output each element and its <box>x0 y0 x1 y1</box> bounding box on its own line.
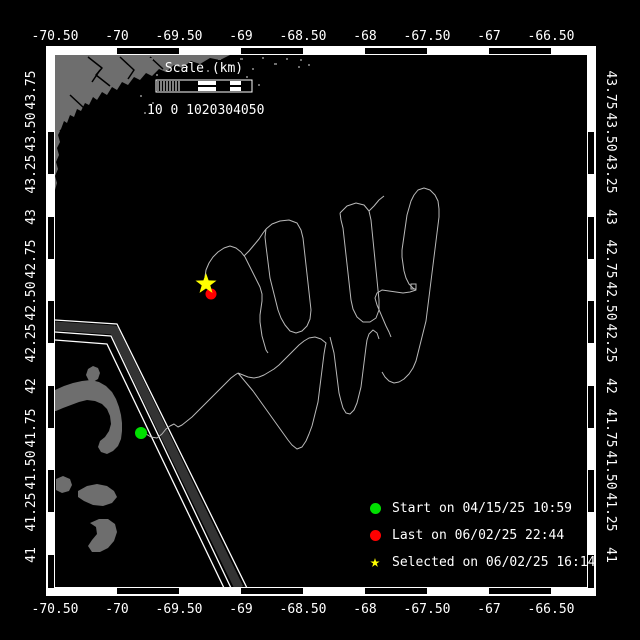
lat-label-right: 42.50 <box>603 281 618 320</box>
land-speckles <box>308 64 310 66</box>
lat-label-right: 43.75 <box>603 70 618 109</box>
frame-tick-segment <box>241 48 303 54</box>
lat-label-left: 42 <box>24 378 39 394</box>
glider-track <box>265 220 311 333</box>
lat-label-right: 41.75 <box>603 408 618 447</box>
position-markers <box>135 273 217 439</box>
lon-label-bottom: -70.50 <box>32 602 79 617</box>
land-speckles <box>286 58 288 60</box>
land-speckles <box>298 66 300 68</box>
land-cape-cod <box>55 380 122 454</box>
glider-track <box>238 337 326 449</box>
land-speckles <box>262 57 264 59</box>
glider-track <box>369 196 384 211</box>
lat-label-right: 42.25 <box>603 323 618 362</box>
lat-label-left: 42.75 <box>24 239 39 278</box>
lat-label-right: 41.50 <box>603 450 618 489</box>
frame-tick-segment <box>588 217 594 259</box>
lon-label-bottom: -67.50 <box>404 602 451 617</box>
frame-tick-segment <box>48 470 54 512</box>
frame-tick-segment <box>117 588 179 594</box>
start-position-marker[interactable] <box>135 427 147 439</box>
frame-tick-segment <box>117 48 179 54</box>
glider-track <box>375 188 439 383</box>
lat-label-left: 43.75 <box>24 70 39 109</box>
land-speckles <box>240 58 243 60</box>
frame-tick-segment <box>48 301 54 343</box>
lon-label-top: -69 <box>229 29 252 44</box>
legend-start-label: Start on 04/15/25 10:59 <box>392 501 572 516</box>
lat-label-left: 41 <box>24 547 39 563</box>
lon-label-bottom: -66.50 <box>528 602 575 617</box>
lat-label-left: 41.50 <box>24 450 39 489</box>
last-dot-icon <box>370 530 381 541</box>
frame-tick-segment <box>588 132 594 174</box>
island-3 <box>88 519 117 552</box>
land-speckles <box>218 57 221 60</box>
island-1 <box>56 476 72 493</box>
frame-tick-segment <box>489 588 551 594</box>
frame-tick-segment <box>48 132 54 174</box>
lat-label-left: 41.25 <box>24 492 39 531</box>
frame-tick-segment <box>48 386 54 428</box>
scale-bar-tick-labels: 10 0 1020304050 <box>147 104 264 118</box>
frame-tick-segment <box>48 555 54 588</box>
legend-last-label: Last on 06/02/25 22:44 <box>392 528 564 543</box>
lat-label-right: 41 <box>603 547 618 563</box>
land-speckles <box>175 57 179 59</box>
lat-label-right: 41.25 <box>603 492 618 531</box>
tracking-map[interactable]: -70.50-70.50-70-70-69.50-69.50-69-69-68.… <box>0 0 640 640</box>
land-texture <box>60 130 72 152</box>
lon-label-top: -67.50 <box>404 29 451 44</box>
frame-tick-segment <box>365 48 427 54</box>
legend-item-start: Start on 04/15/25 10:59 <box>364 495 596 522</box>
lon-label-top: -68.50 <box>280 29 327 44</box>
lat-label-right: 43.50 <box>603 112 618 151</box>
shipping-lane-band <box>55 326 239 588</box>
lat-label-left: 43.25 <box>24 154 39 193</box>
glider-track <box>244 229 266 256</box>
glider-track <box>330 330 379 414</box>
frame-tick-segment <box>365 588 427 594</box>
lon-label-top: -69.50 <box>156 29 203 44</box>
scale-bar <box>156 80 252 92</box>
lon-label-top: -68 <box>353 29 376 44</box>
selected-star-icon: ★ <box>370 554 380 571</box>
legend-item-selected: ★ Selected on 06/02/25 16:14 <box>364 549 596 576</box>
lon-label-top: -67 <box>477 29 500 44</box>
lat-label-left: 41.75 <box>24 408 39 447</box>
frame-tick-segment <box>489 48 551 54</box>
lon-label-bottom: -68 <box>353 602 376 617</box>
lat-label-right: 43.25 <box>603 154 618 193</box>
land-texture <box>96 100 108 112</box>
lon-label-bottom: -70 <box>105 602 128 617</box>
lat-label-left: 42.25 <box>24 323 39 362</box>
lat-label-right: 42 <box>603 378 618 394</box>
land-speckles <box>246 76 248 78</box>
land-speckles <box>144 112 146 114</box>
lon-label-bottom: -69.50 <box>156 602 203 617</box>
frame-tick-segment <box>588 386 594 428</box>
lat-label-left: 43.50 <box>24 112 39 151</box>
legend-selected-label: Selected on 06/02/25 16:14 <box>392 555 596 570</box>
lon-label-top: -66.50 <box>528 29 575 44</box>
island-2 <box>78 484 117 506</box>
lon-label-bottom: -69 <box>229 602 252 617</box>
start-dot-icon <box>370 503 381 514</box>
lon-label-bottom: -67 <box>477 602 500 617</box>
legend-item-last: Last on 06/02/25 22:44 <box>364 522 596 549</box>
lat-label-left: 43 <box>24 209 39 225</box>
land-cape-hook <box>86 366 100 382</box>
lat-label-left: 42.50 <box>24 281 39 320</box>
glider-track <box>205 246 268 353</box>
lon-label-top: -70.50 <box>32 29 79 44</box>
land-speckles <box>150 58 153 60</box>
glider-track <box>340 203 379 322</box>
land-speckles <box>274 63 277 65</box>
shipping-lane-lines <box>55 332 231 588</box>
land-speckles <box>300 59 302 61</box>
land-speckles <box>140 95 142 97</box>
frame-tick-segment <box>588 301 594 343</box>
lat-label-right: 43 <box>603 209 618 225</box>
land-speckles <box>258 84 260 86</box>
scale-bar-title: Scale (km) <box>149 62 259 76</box>
frame-tick-segment <box>48 217 54 259</box>
frame-tick-segment <box>241 588 303 594</box>
legend: Start on 04/15/25 10:59 Last on 06/02/25… <box>364 495 596 576</box>
lon-label-bottom: -68.50 <box>280 602 327 617</box>
lon-label-top: -70 <box>105 29 128 44</box>
lat-label-right: 42.75 <box>603 239 618 278</box>
